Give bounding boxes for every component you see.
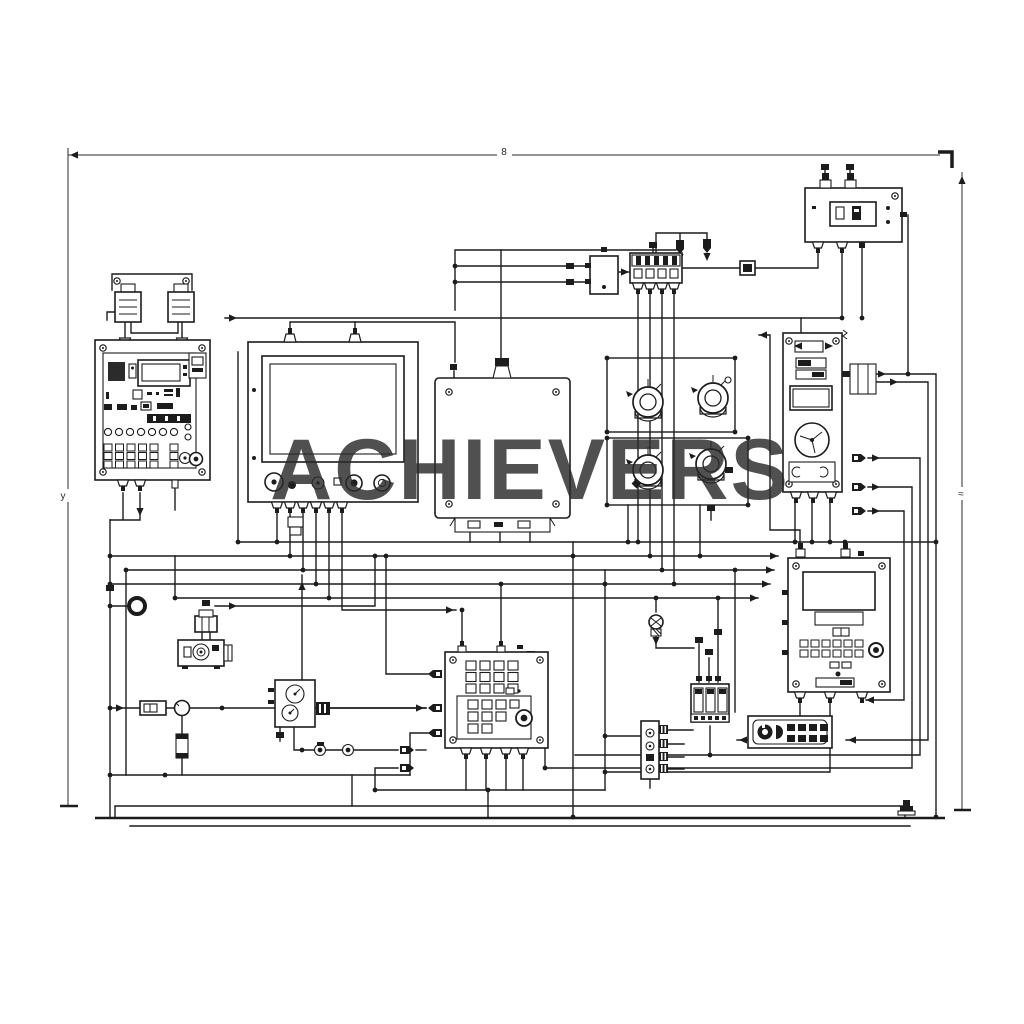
wiring-diagram: 8 y ≈ ACHIEVERS: [0, 0, 1024, 1024]
button-panel: [748, 716, 832, 748]
ring-terminal: [129, 598, 145, 614]
controller-unit: [782, 543, 890, 703]
relay-block: [691, 676, 729, 722]
keypad-unit: [428, 641, 548, 759]
dimension-label-top: 8: [501, 147, 507, 158]
panel-dark-button[interactable]: [108, 362, 125, 381]
indicator-lamp: [649, 615, 663, 636]
valve-1: [626, 379, 663, 421]
fuse-holder: [140, 701, 190, 716]
transformer-pair: [114, 278, 194, 349]
fuse-block: [630, 253, 682, 294]
terminal-strip: [641, 721, 668, 779]
gauge-module: [268, 680, 330, 727]
fan-control-panel: [783, 330, 847, 503]
connector-plugs-right: [842, 364, 898, 515]
dimension-label-right: ≈: [958, 489, 964, 500]
dimension-label-left: y: [61, 491, 66, 502]
schematic-page: 8 y ≈ ACHIEVERS: [0, 0, 1024, 1024]
aux-square-component: [740, 261, 755, 275]
dark-connector-block: [316, 702, 330, 715]
controller-display: [803, 572, 875, 610]
ground-rail: [95, 800, 945, 826]
valve-2: [691, 375, 728, 417]
diode-pair: [676, 239, 711, 254]
panel-toggle[interactable]: [129, 364, 136, 378]
control-panel-unit: [95, 340, 210, 491]
round-contacts: [315, 742, 415, 772]
meter-box: [805, 173, 907, 253]
watermark-text: ACHIEVERS: [270, 422, 790, 518]
inline-fuse: [176, 734, 188, 758]
relay-module: [585, 247, 618, 294]
sensor-camera: [178, 610, 232, 669]
